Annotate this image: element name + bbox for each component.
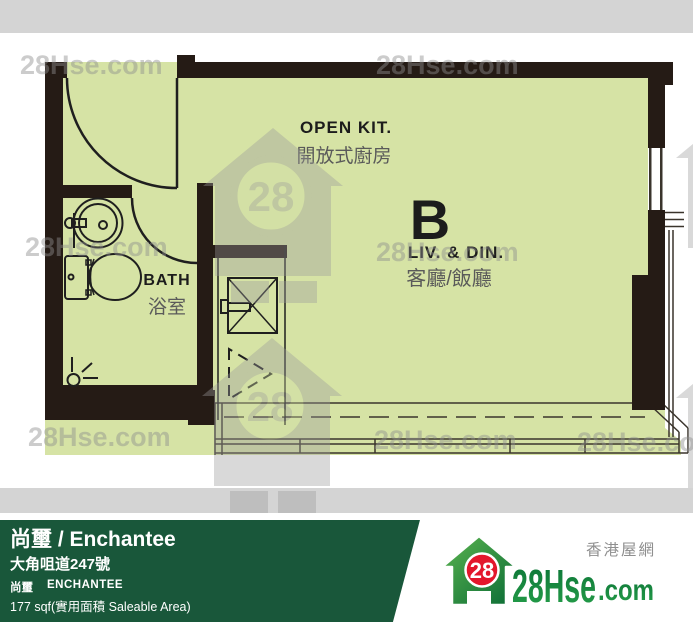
estate-name-en: ENCHANTEE xyxy=(47,579,123,595)
label-living-dining-zh: 客廳/飯廳 xyxy=(406,267,492,290)
watermark-text: 28Hse.com xyxy=(376,237,519,267)
label-bath-zh: 浴室 xyxy=(148,296,186,318)
label-bath-en: BATH xyxy=(143,272,190,289)
watermark-text: 28Hse.com xyxy=(20,50,163,80)
estate-name-line: 尚璽 ENCHANTEE xyxy=(10,579,123,595)
logo-brand-text: 28Hse xyxy=(512,560,596,612)
watermark-text: 28Hse.com xyxy=(28,422,171,452)
watermark-number: 28 xyxy=(247,383,294,430)
estate-title: 尚璽 / Enchantee xyxy=(10,523,176,553)
floorplan-drawing: OPEN KIT. 開放式廚房 B LIV. & DIN. 客廳/飯廳 BATH… xyxy=(0,0,693,520)
bottom-gray-bar xyxy=(0,488,693,513)
watermark-text: 28Hse.com xyxy=(577,427,693,457)
watermark-number: 28 xyxy=(248,173,295,220)
logo-tagline: 香港屋網 xyxy=(586,541,656,559)
estate-name-zh: 尚璽 xyxy=(10,579,33,595)
logo-house-icon: 28 xyxy=(442,536,516,605)
top-gray-bar xyxy=(0,0,693,33)
site-logo[interactable]: 28 28Hse .com 香港屋網 xyxy=(440,534,693,620)
floorplan-page: OPEN KIT. 開放式廚房 B LIV. & DIN. 客廳/飯廳 BATH… xyxy=(0,0,693,622)
watermark-text: 28Hse.com xyxy=(25,232,168,262)
watermark-text: 28Hse.com xyxy=(374,425,517,455)
logo-badge-number: 28 xyxy=(470,558,494,583)
saleable-area: 177 sqf(實用面積 Saleable Area) xyxy=(10,596,191,615)
watermark-text: 28Hse.com xyxy=(376,50,519,80)
logo-brand-suffix: .com xyxy=(598,574,654,607)
label-open-kitchen-en: OPEN KIT. xyxy=(300,118,392,137)
estate-address: 大角咀道247號 xyxy=(10,553,110,574)
